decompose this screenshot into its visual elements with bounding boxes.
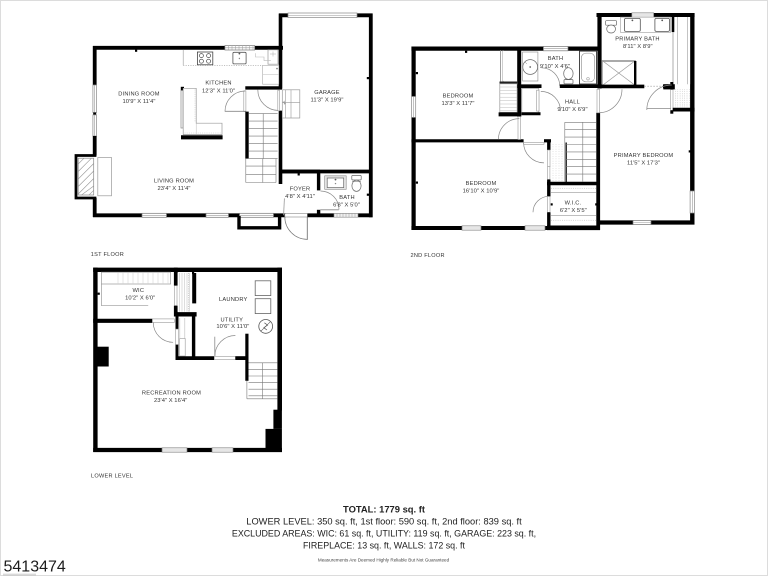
svg-text:BATH: BATH (548, 56, 564, 62)
svg-text:Measurements Are Deemed Highly: Measurements Are Deemed Highly Reliable … (318, 557, 450, 562)
svg-text:10'2" X 6'0": 10'2" X 6'0" (125, 296, 155, 302)
svg-text:16'10" X 10'9": 16'10" X 10'9" (463, 189, 500, 195)
svg-text:1ST FLOOR: 1ST FLOOR (91, 252, 124, 258)
svg-text:RECREATION ROOM: RECREATION ROOM (142, 391, 201, 397)
svg-text:PRIMARY BEDROOM: PRIMARY BEDROOM (614, 153, 674, 159)
svg-text:TOTAL: 1779 sq. ft: TOTAL: 1779 sq. ft (343, 504, 425, 515)
svg-text:KITCHEN: KITCHEN (205, 81, 231, 87)
svg-text:9'10" X 6'9": 9'10" X 6'9" (557, 107, 587, 113)
svg-text:23'4" X 16'4": 23'4" X 16'4" (154, 398, 187, 404)
svg-text:BEDROOM: BEDROOM (443, 93, 474, 99)
svg-text:BEDROOM: BEDROOM (466, 181, 497, 187)
svg-text:6'8" X 5'0": 6'8" X 5'0" (333, 202, 360, 208)
svg-text:11'5" X 17'3": 11'5" X 17'3" (627, 161, 660, 167)
svg-text:DINING ROOM: DINING ROOM (118, 92, 159, 98)
svg-text:LOWER LEVEL: 350 sq. ft, 1st f: LOWER LEVEL: 350 sq. ft, 1st floor: 590 … (246, 516, 522, 526)
svg-text:W.I.C.: W.I.C. (565, 201, 582, 207)
svg-text:10'6" X 11'0": 10'6" X 11'0" (216, 324, 249, 330)
svg-text:BATH: BATH (339, 195, 355, 201)
svg-text:FOYER: FOYER (290, 187, 311, 193)
svg-text:PRIMARY BATH: PRIMARY BATH (615, 36, 659, 42)
svg-text:13'3" X 11'7": 13'3" X 11'7" (442, 101, 475, 107)
svg-text:5413474: 5413474 (4, 559, 66, 576)
svg-text:LAUNDRY: LAUNDRY (219, 297, 247, 303)
svg-text:FIREPLACE: 13 sq. ft, WALLS: 1: FIREPLACE: 13 sq. ft, WALLS: 172 sq. ft (303, 540, 465, 550)
svg-text:10'9" X 11'4": 10'9" X 11'4" (123, 99, 156, 105)
svg-text:WIC: WIC (132, 288, 144, 294)
svg-text:8'11" X 8'9": 8'11" X 8'9" (623, 44, 653, 50)
svg-text:23'4" X 11'4": 23'4" X 11'4" (158, 186, 191, 192)
svg-text:UTILITY: UTILITY (221, 318, 244, 324)
svg-text:6'2" X 5'5": 6'2" X 5'5" (560, 208, 587, 214)
svg-text:4'8" X 4'11": 4'8" X 4'11" (285, 194, 315, 200)
svg-text:GARAGE: GARAGE (314, 90, 340, 96)
svg-text:LIVING ROOM: LIVING ROOM (154, 179, 194, 185)
svg-text:EXCLUDED AREAS: WIC: 61 sq. ft: EXCLUDED AREAS: WIC: 61 sq. ft, UTILITY:… (232, 528, 536, 538)
svg-text:LOWER LEVEL: LOWER LEVEL (91, 474, 133, 480)
svg-text:HALL: HALL (565, 100, 580, 106)
svg-text:2ND FLOOR: 2ND FLOOR (411, 253, 445, 259)
svg-text:9'10" X 4'6": 9'10" X 4'6" (540, 64, 570, 70)
svg-text:12'3" X 11'0": 12'3" X 11'0" (202, 88, 235, 94)
svg-text:11'3" X 19'9": 11'3" X 19'9" (311, 98, 344, 104)
